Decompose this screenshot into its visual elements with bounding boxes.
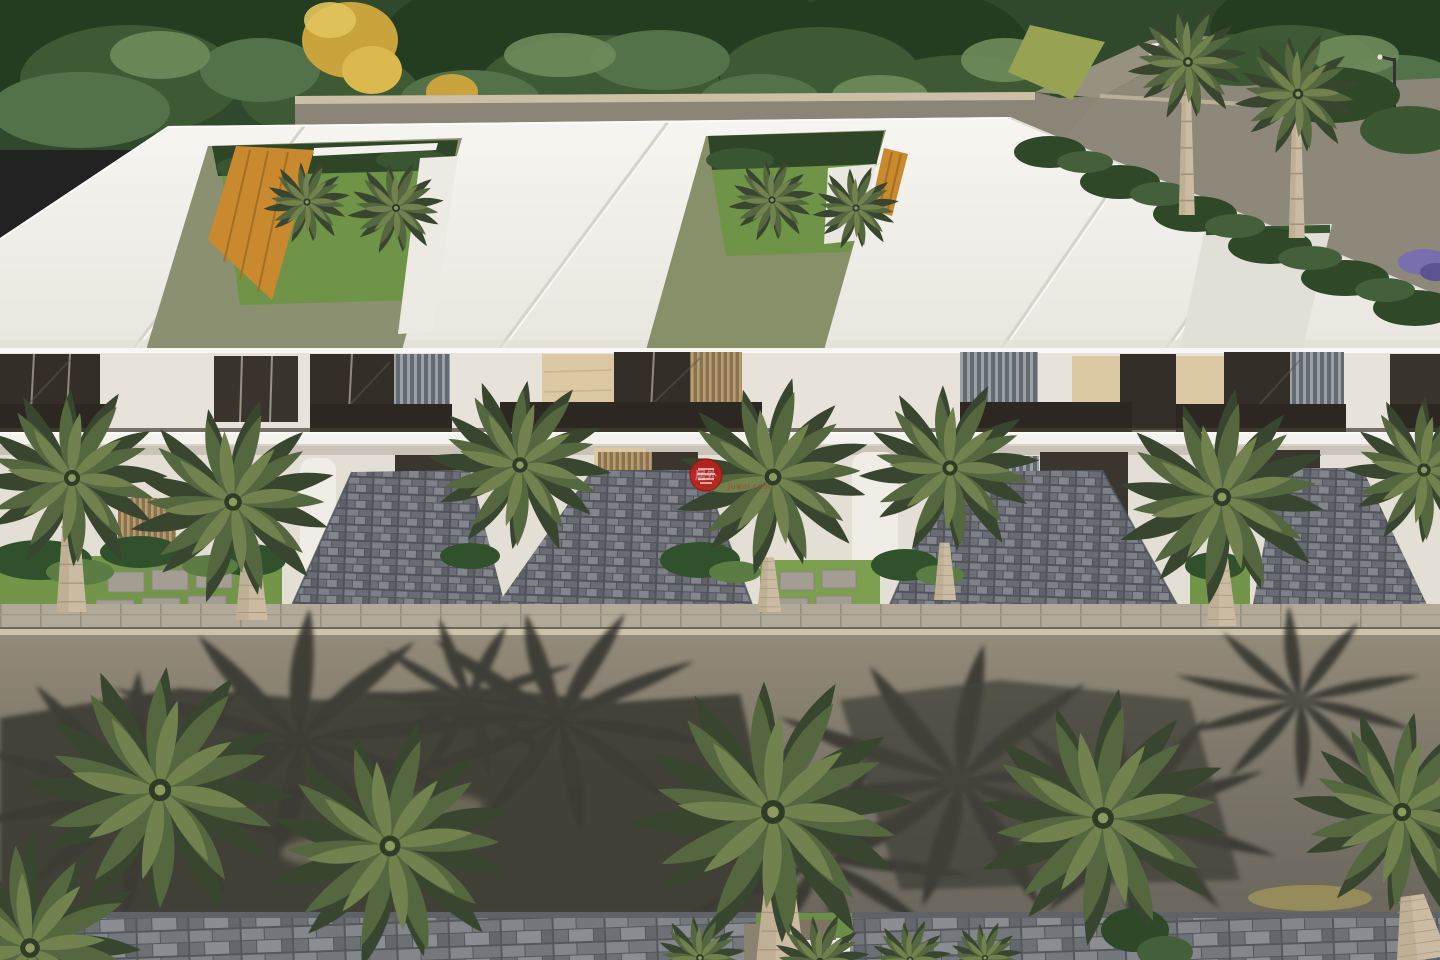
rendering-canvas: 居外 Juwai.com (0, 0, 1440, 960)
dry-grass-patch (1248, 885, 1372, 911)
watermark-side-text: Juwai.com (727, 482, 771, 491)
watermark-seal-text: 居外 (695, 468, 717, 482)
